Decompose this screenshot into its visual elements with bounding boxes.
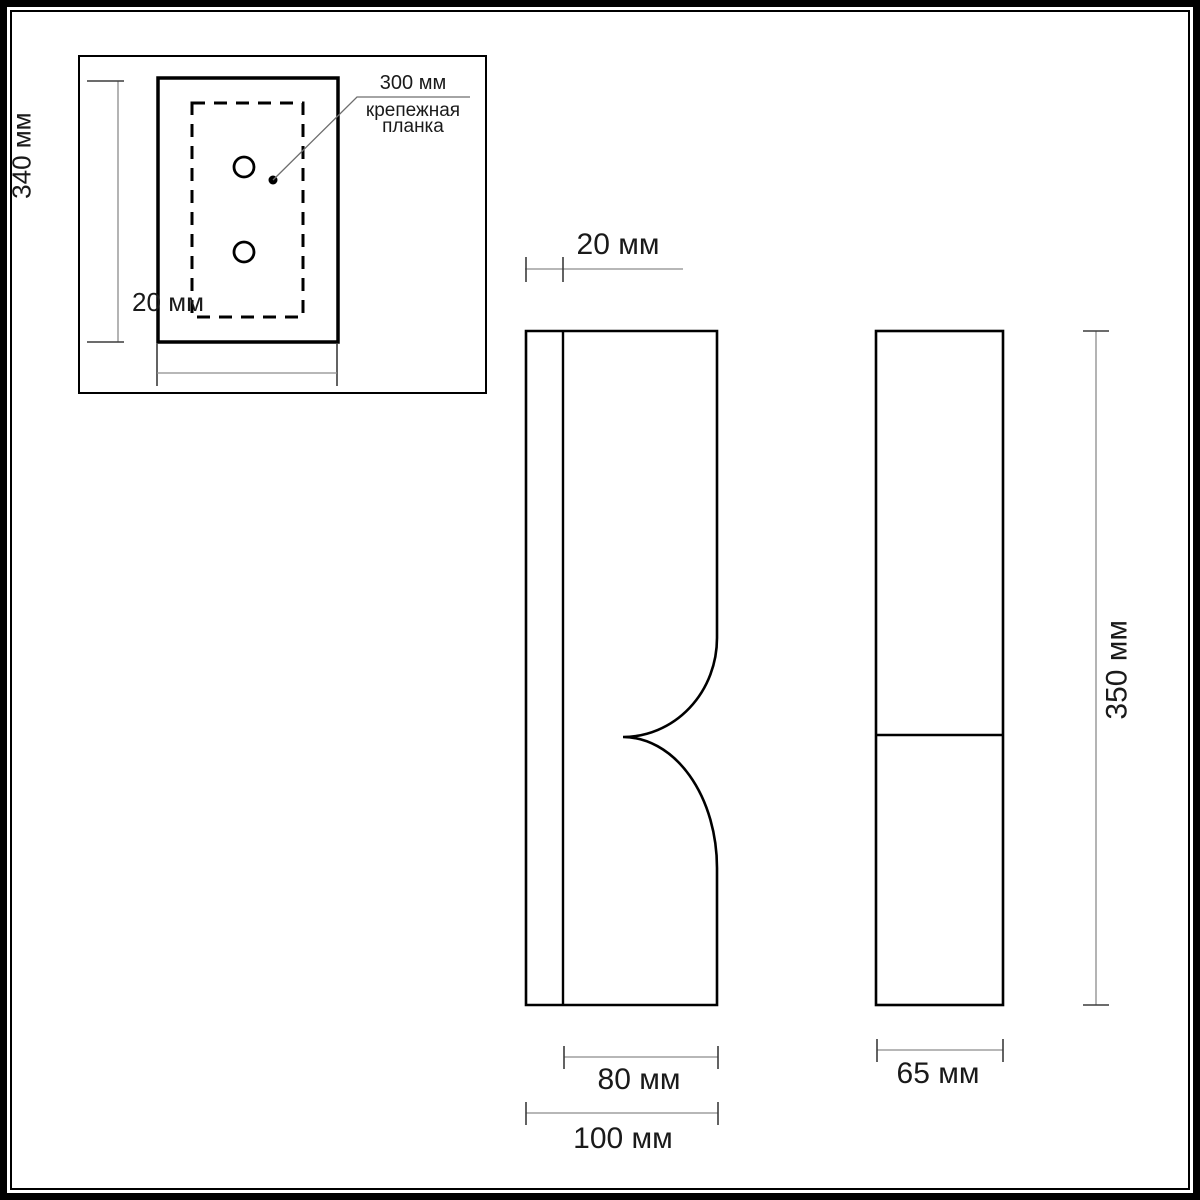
inset-height-dimension-label: 340 мм [8, 96, 35, 216]
side-view-outline [876, 331, 1003, 1005]
front-view-outline [526, 331, 717, 1005]
callout-name-label: крепежная планка [343, 103, 483, 135]
technical-drawing-page: 340 мм 20 мм 300 мм крепежная планка 20 … [0, 0, 1200, 1200]
callout-name-line2: планка [343, 119, 483, 135]
callout-dimension-label: 300 мм [343, 73, 483, 94]
mounting-hole-bottom [234, 242, 254, 262]
mounting-plate-dashed-outline [192, 103, 303, 317]
side-width-dimension-label: 65 мм [868, 1058, 1008, 1090]
drawing-canvas [0, 0, 1200, 1200]
mounting-hole-top [234, 157, 254, 177]
front-inner-width-dimension-label: 80 мм [569, 1064, 709, 1096]
front-total-width-dimension-label: 100 мм [553, 1123, 693, 1155]
side-height-dimension-label: 350 мм [1101, 590, 1133, 750]
front-depth-dimension-label: 20 мм [548, 229, 688, 261]
inset-width-dimension-label: 20 мм [108, 289, 228, 316]
